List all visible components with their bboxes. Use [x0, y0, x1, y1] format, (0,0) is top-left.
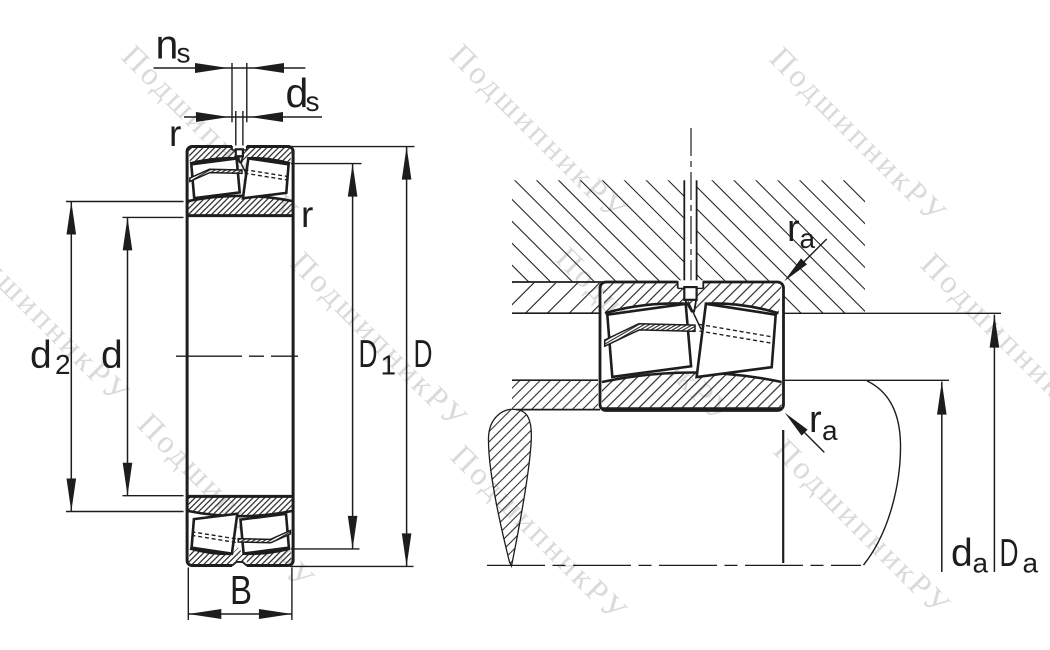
svg-text:D: D — [1000, 532, 1019, 575]
svg-text:2: 2 — [55, 349, 71, 380]
svg-text:n: n — [156, 22, 179, 68]
svg-text:s: s — [177, 38, 191, 69]
svg-text:a: a — [822, 415, 838, 446]
svg-text:r: r — [169, 113, 181, 154]
svg-text:s: s — [306, 86, 320, 117]
svg-text:d: d — [101, 334, 123, 377]
svg-text:r: r — [787, 208, 800, 250]
svg-text:d: d — [30, 334, 52, 377]
svg-text:a: a — [800, 223, 816, 254]
svg-text:a: a — [973, 548, 989, 579]
svg-text:a: a — [1023, 548, 1039, 579]
svg-text:d: d — [951, 532, 973, 575]
svg-text:r: r — [301, 194, 313, 235]
svg-text:D: D — [359, 333, 378, 376]
svg-text:1: 1 — [381, 350, 397, 381]
svg-text:B: B — [230, 567, 252, 613]
svg-text:D: D — [414, 333, 433, 376]
svg-text:r: r — [809, 399, 822, 441]
